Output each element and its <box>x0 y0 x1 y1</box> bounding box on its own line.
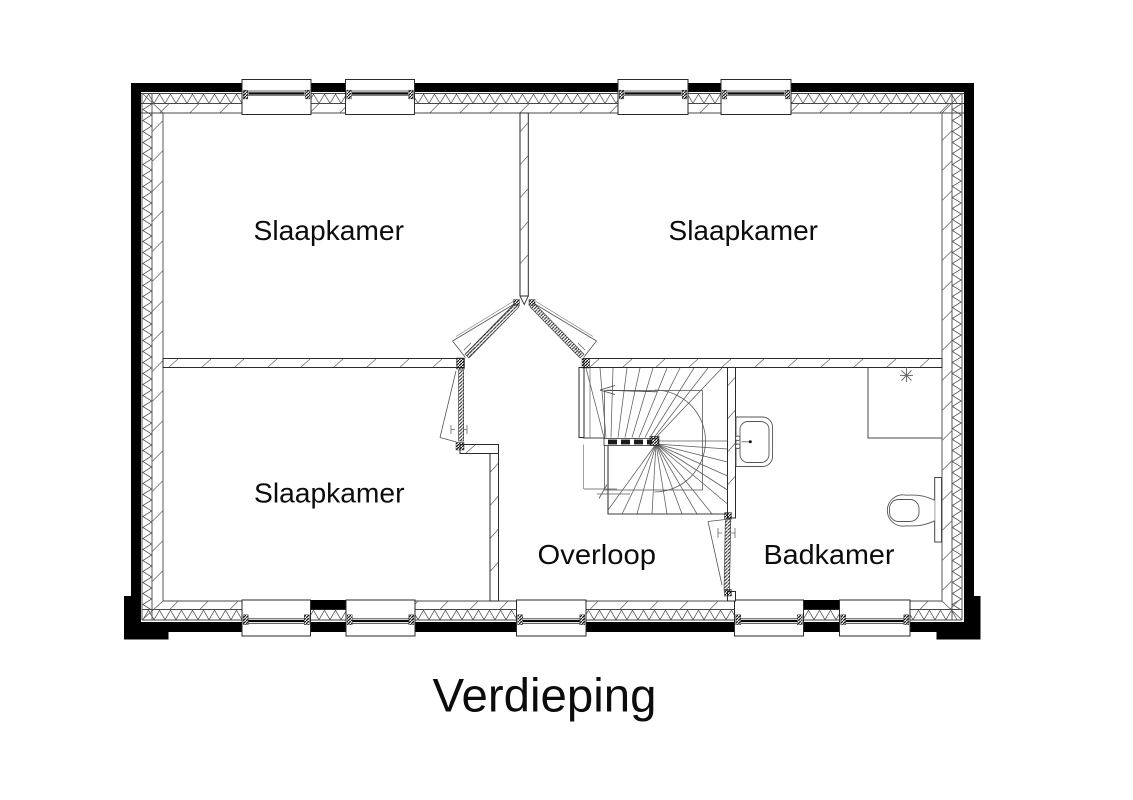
svg-text:Badkamer: Badkamer <box>764 539 895 570</box>
svg-text:Slaapkamer: Slaapkamer <box>254 478 405 509</box>
svg-text:Slaapkamer: Slaapkamer <box>669 215 819 246</box>
svg-text:Slaapkamer: Slaapkamer <box>254 215 405 246</box>
svg-text:Overloop: Overloop <box>538 539 657 570</box>
svg-text:Verdieping: Verdieping <box>433 669 657 722</box>
